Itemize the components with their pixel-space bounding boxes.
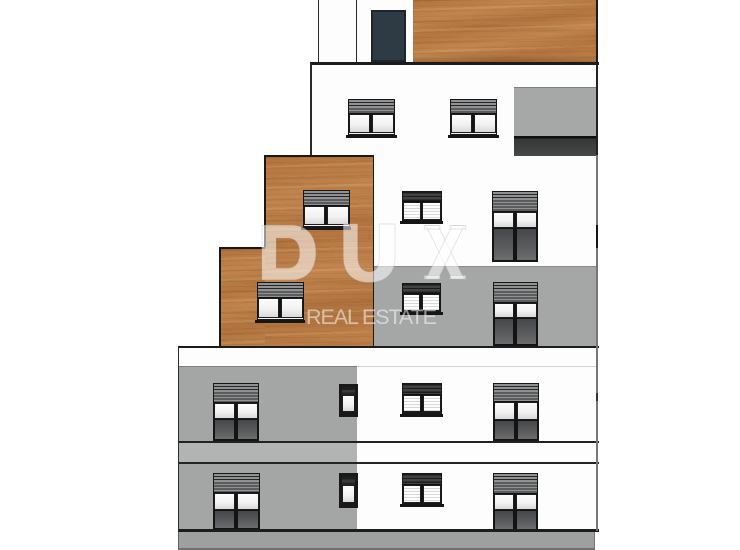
svg-text:REAL ESTATE: REAL ESTATE [306,305,437,329]
